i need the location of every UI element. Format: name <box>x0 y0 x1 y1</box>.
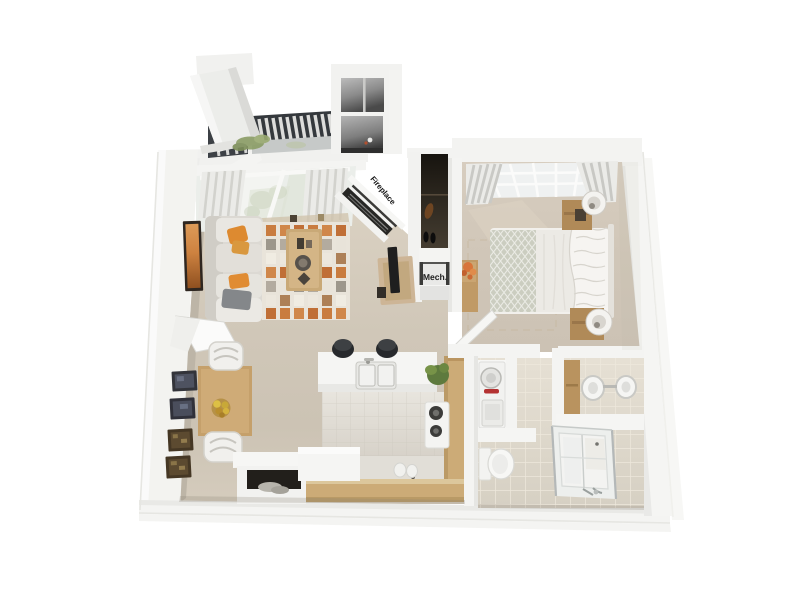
svg-text:Mech.: Mech. <box>423 272 447 282</box>
